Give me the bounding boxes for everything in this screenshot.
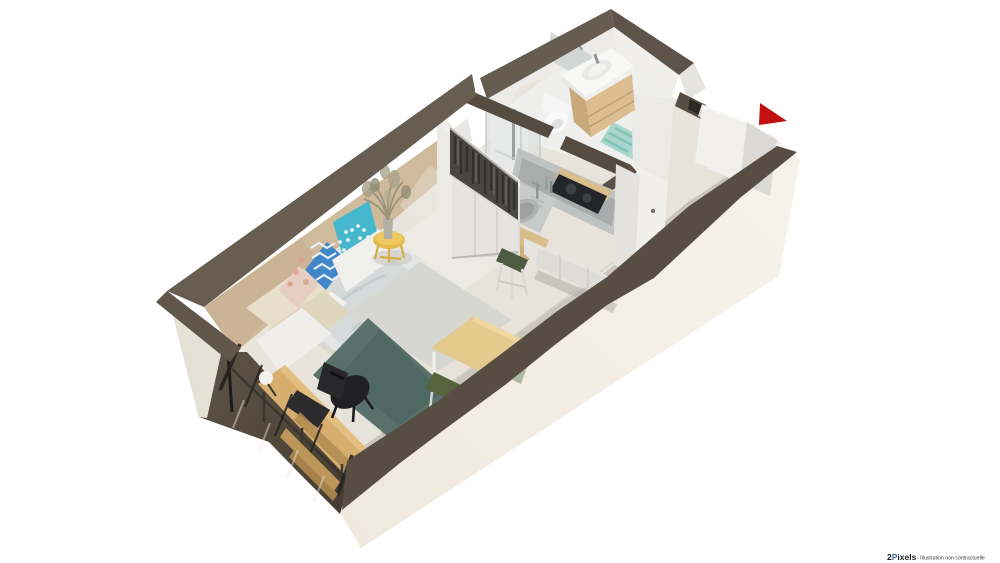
svg-text:2Pixels: 2Pixels bbox=[887, 552, 917, 562]
svg-text:- Illustration non contractuel: - Illustration non contractuelle bbox=[917, 556, 985, 562]
